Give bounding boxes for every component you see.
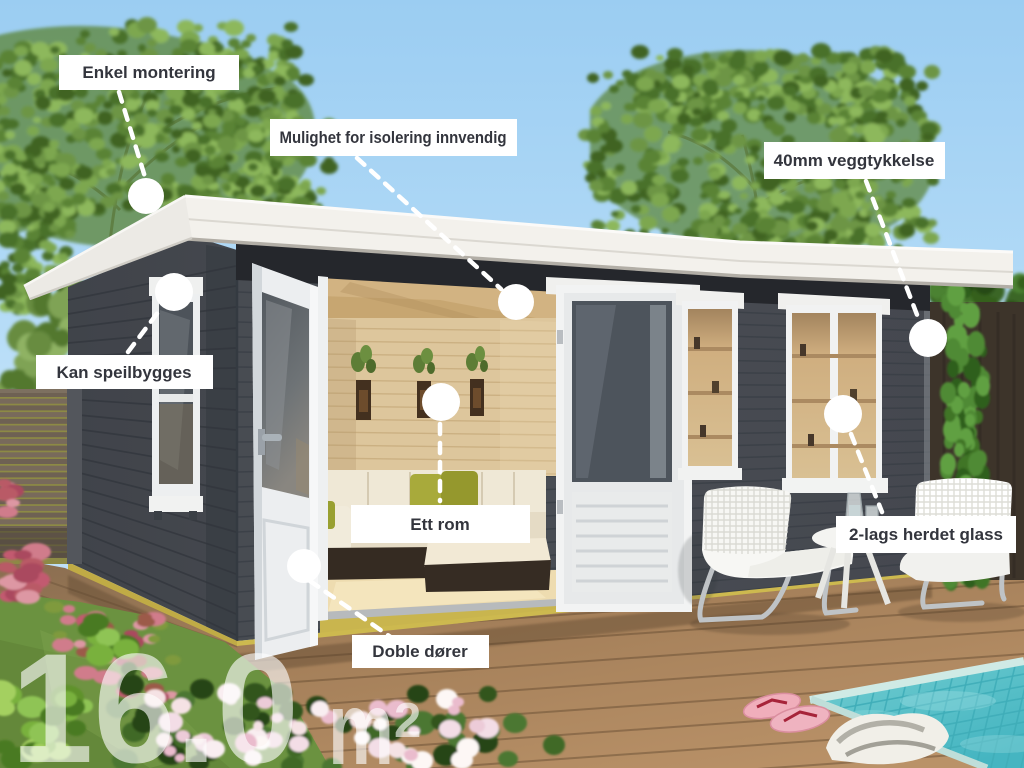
svg-text:Enkel montering: Enkel montering [82, 63, 215, 82]
svg-text:Mulighet for isolering innvend: Mulighet for isolering innvendig [280, 128, 507, 147]
svg-text:2-lags herdet glass: 2-lags herdet glass [849, 525, 1003, 544]
svg-text:Ett rom: Ett rom [410, 515, 470, 534]
svg-text:16.0: 16.0 [11, 622, 299, 768]
svg-text:40mm veggtykkelse: 40mm veggtykkelse [774, 151, 935, 170]
svg-text:2: 2 [394, 694, 421, 748]
svg-text:Doble dører: Doble dører [372, 642, 468, 661]
svg-text:Kan speilbygges: Kan speilbygges [56, 363, 191, 382]
svg-text:m: m [328, 671, 394, 768]
